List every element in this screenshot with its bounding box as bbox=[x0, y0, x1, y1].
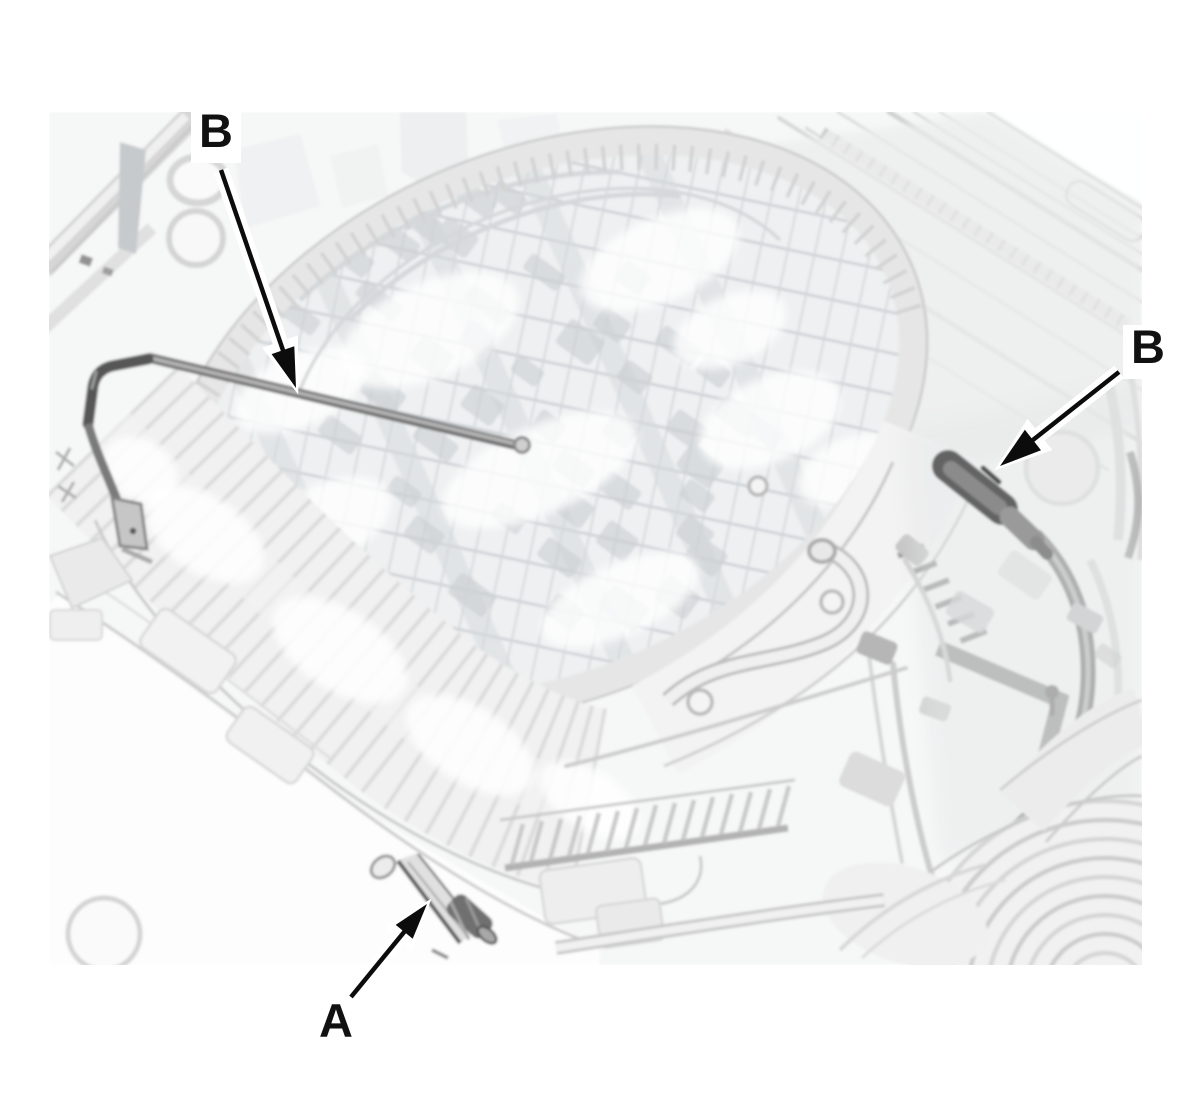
svg-text:B: B bbox=[199, 104, 233, 157]
svg-text:A: A bbox=[319, 994, 353, 1047]
svg-text:B: B bbox=[1131, 320, 1165, 373]
